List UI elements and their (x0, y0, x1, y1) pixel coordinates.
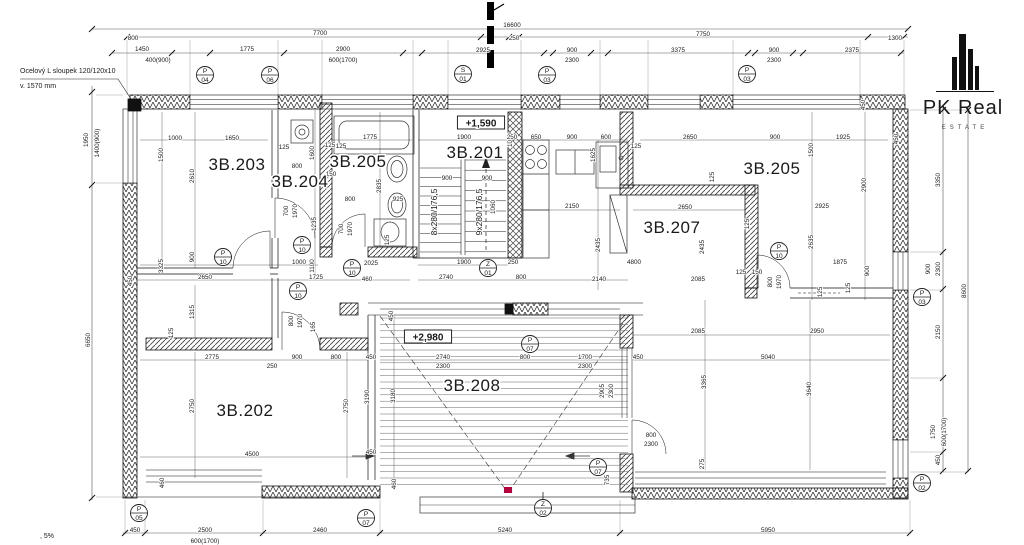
dimension-label: 1925 (836, 134, 851, 141)
dimension-label: 2905 (599, 384, 606, 399)
svg-text:10: 10 (298, 247, 306, 254)
steel-column (128, 99, 141, 111)
svg-text:02: 02 (918, 485, 926, 492)
dimension-label: 1600 (309, 146, 316, 161)
dimension-label: 450 (127, 275, 134, 286)
dimension-label: 2300 (436, 363, 451, 370)
svg-text:Z: Z (541, 501, 545, 508)
dimension-label: 2300 (578, 363, 593, 370)
svg-text:06: 06 (266, 77, 274, 84)
dimension-label: 1650 (225, 135, 240, 142)
dimension-label: 2650 (678, 204, 693, 211)
dimension-label: 2635 (808, 235, 815, 250)
dimension-label: 125 (168, 327, 175, 338)
dimension-label: 1000 (292, 259, 307, 266)
room-label-3b204: 3B.204 (272, 172, 329, 191)
dimension-label: 1000 (168, 135, 183, 142)
dimension-label: 3375 (671, 47, 686, 54)
svg-text:P: P (350, 261, 354, 268)
dimension-label: 800 (288, 315, 295, 326)
dimension-label: 3190 (364, 390, 371, 405)
dimension-label: 800 (767, 276, 774, 287)
dimension-label: 3325 (158, 259, 165, 274)
dimension-label: 4800 (627, 259, 642, 266)
dimension-label: 2150 (935, 325, 942, 340)
svg-text:07: 07 (362, 520, 370, 527)
room-label-3b201: 3B.201 (447, 143, 504, 162)
dimension-label: 8600 (961, 284, 968, 299)
dimension-label: 2750 (343, 399, 350, 414)
svg-text:P: P (137, 506, 141, 513)
dimension-label: 735 (604, 474, 611, 485)
svg-text:03: 03 (543, 77, 551, 84)
dimension-label: 600(1700) (329, 57, 358, 64)
dimension-label: 6650 (85, 333, 92, 348)
svg-text:P: P (745, 67, 749, 74)
reference-marker-z02: Z02 (535, 500, 552, 518)
dimension-label: 250 (508, 259, 519, 266)
svg-text:10: 10 (219, 259, 227, 266)
dimension-label: 460 (159, 477, 166, 488)
dimension-label: 1875 (833, 259, 848, 266)
dimension-label: 250 (267, 363, 278, 370)
dimension-label: 800 (646, 432, 657, 439)
reference-marker-p05: P05 (131, 505, 148, 523)
dimension-label: 1315 (189, 305, 196, 320)
dimension-label: 1775 (240, 46, 255, 53)
svg-text:P: P (777, 244, 781, 251)
dimension-label: 2300 (767, 57, 782, 64)
reference-marker-p03: P03 (539, 67, 556, 85)
level-value: +1,590 (466, 119, 497, 130)
room-label-3b203: 3B.203 (209, 155, 266, 174)
dimension-label: 2775 (205, 354, 220, 361)
dimension-label: 125 (325, 142, 336, 149)
floorplan-canvas: Ocelový L sloupek 120/120x10 v. 1570 mm … (0, 0, 1024, 545)
dimension-label: 600 (601, 134, 612, 141)
dimension-label: 900 (292, 354, 303, 361)
svg-text:P: P (221, 250, 225, 257)
reference-marker-p03: P03 (914, 289, 931, 307)
reference-marker-p07: P07 (590, 459, 607, 477)
dimension-label: 800 (520, 354, 531, 361)
svg-text:04: 04 (201, 77, 209, 84)
svg-text:07: 07 (526, 346, 534, 353)
dimension-label: 450 (388, 310, 395, 321)
dimension-label: 800 (345, 196, 356, 203)
stair-flight-right-label: 9x280/176,5 (474, 188, 484, 235)
reference-marker-p04: P04 (197, 67, 214, 85)
dimension-label: 900 (864, 265, 871, 276)
dimension-label: 2900 (336, 46, 351, 53)
dimension-label: 2300 (608, 384, 615, 399)
svg-text:03: 03 (743, 76, 751, 83)
dimension-label: 5950 (761, 527, 776, 534)
room-label-3b205: 3B.205 (330, 152, 387, 171)
dimension-label: 1300 (888, 35, 903, 42)
room-label-3b202: 3B.202 (217, 401, 274, 420)
dimension-label: 250 (507, 134, 518, 141)
dimension-label: 165 (310, 321, 317, 332)
svg-text:S: S (461, 67, 466, 74)
stair-flight-left-label: 8x280/176,5 (429, 188, 439, 235)
dimension-label: 2740 (439, 274, 454, 281)
dimension-label: 4500 (245, 451, 260, 458)
dimension-label: 800 (128, 35, 139, 42)
room-label-3b208: 3B.208 (444, 376, 501, 395)
blueprint-page: Ocelový L sloupek 120/120x10 v. 1570 mm … (0, 0, 1024, 545)
dimension-label: 3180 (390, 389, 397, 404)
dimension-label: 2750 (189, 399, 196, 414)
dimension-label: 2925 (476, 47, 491, 54)
dimension-label: 2900 (861, 178, 868, 193)
svg-text:10: 10 (775, 253, 783, 260)
dimension-label: 1970 (776, 275, 783, 290)
dimension-label: 450 (633, 354, 644, 361)
dimension-label: 1500 (808, 143, 815, 158)
reference-marker-p06: P06 (262, 67, 279, 85)
dimension-label: 450 (366, 449, 377, 456)
svg-text:P: P (528, 337, 532, 344)
dimension-label: 900 (769, 47, 780, 54)
dimension-label: 1970 (347, 222, 354, 237)
dimension-label: 2375 (845, 47, 860, 54)
dimension-label: 650 (531, 134, 542, 141)
dimension-label: 2650 (683, 134, 698, 141)
svg-text:P: P (203, 68, 207, 75)
reference-marker-p02: P02 (914, 475, 931, 493)
dimension-label: 2460 (313, 527, 328, 534)
dimension-label: 125 (336, 143, 347, 150)
svg-text:P: P (920, 290, 924, 297)
reference-marker-p10: P10 (290, 283, 307, 301)
dimension-label: 900 (925, 263, 932, 274)
dimension-label: 2435 (699, 240, 706, 255)
reference-marker-p10: P10 (771, 243, 788, 261)
dimension-label: 1900 (457, 259, 472, 266)
svg-text:10: 10 (294, 293, 302, 300)
logo-subtitle: ESTATE (942, 125, 988, 131)
svg-text:10: 10 (348, 270, 356, 277)
dimension-label: 125 (279, 144, 290, 151)
dimension-label: 900 (567, 47, 578, 54)
dimension-label: 450 (130, 527, 141, 534)
dimension-label: 450 (366, 354, 377, 361)
dimension-label: 1400(900) (94, 129, 101, 158)
dimension-label: 125 (817, 286, 824, 297)
svg-text:01: 01 (484, 270, 492, 277)
dimension-label: 2950 (810, 328, 825, 335)
reference-marker-p10: P10 (344, 260, 361, 278)
svg-text:Z: Z (486, 261, 490, 268)
dimension-label: 7750 (696, 31, 711, 38)
dimension-label: 125 (631, 143, 642, 150)
dimension-label: 150 (752, 269, 763, 276)
dimension-label: 2150 (565, 203, 580, 210)
reference-marker-z01: Z01 (480, 260, 497, 278)
dimension-label: 900 (442, 175, 453, 182)
reference-marker-p07: P07 (522, 336, 539, 354)
dimension-label: 275 (699, 458, 706, 469)
dimension-label: 1970 (297, 314, 304, 329)
svg-text:03: 03 (918, 299, 926, 306)
room-label-3b207: 3B.207 (644, 218, 701, 237)
reference-marker-p10: P10 (215, 249, 232, 267)
reference-marker-p03: P03 (739, 66, 756, 84)
svg-text:P: P (364, 511, 368, 518)
svg-text:P: P (545, 68, 549, 75)
dimension-label: 700 (283, 205, 290, 216)
dimension-label: 2925 (815, 203, 830, 210)
dimension-label: 1775 (363, 134, 378, 141)
dimension-label: 450 (860, 99, 867, 110)
dimension-label: 3640 (806, 382, 813, 397)
dimension-label: 800 (331, 354, 342, 361)
dimension-label: 900 (189, 251, 196, 262)
dimension-label: 125 (384, 234, 391, 245)
slope-note: , 5% (40, 533, 54, 540)
dimension-label: 1625 (590, 148, 597, 163)
svg-text:02: 02 (539, 510, 547, 517)
dimension-label: 400(900) (145, 57, 170, 64)
dimension-label: 2300 (935, 262, 942, 277)
dimension-label: 2740 (436, 354, 451, 361)
drain-point (504, 487, 512, 493)
dimension-label: 3350 (935, 173, 942, 188)
dimension-label: 125 (709, 171, 716, 182)
dimension-label: 925 (393, 196, 404, 203)
svg-text:P: P (296, 284, 300, 291)
svg-text:P: P (300, 238, 304, 245)
steel-column-note-line2: v. 1570 mm (20, 83, 56, 90)
dimension-label: 900 (567, 134, 578, 141)
dimension-label: 2300 (565, 57, 580, 64)
dimension-label: 5040 (761, 354, 776, 361)
dimension-label: 1235 (311, 217, 318, 232)
dimension-label: 1750 (930, 425, 937, 440)
dimension-label: 700 (338, 223, 345, 234)
dimension-label: 1970 (292, 204, 299, 219)
dimension-label: 2085 (691, 276, 706, 283)
reference-marker-p07: P07 (358, 510, 375, 528)
logo-name: PK Real (923, 97, 1003, 119)
dimension-label: 3365 (701, 375, 708, 390)
dimension-label: 1060 (490, 200, 497, 215)
dimension-label: 1725 (309, 274, 324, 281)
reference-marker-s01: S01 (455, 66, 472, 84)
dimension-label: 16600 (503, 22, 521, 29)
reference-marker-p10: P10 (294, 237, 311, 255)
dimension-label: 600(1700) (941, 418, 948, 447)
dimension-label: 1100 (309, 259, 316, 273)
dimension-label: 2650 (198, 274, 213, 281)
dimension-label: 900 (770, 134, 781, 141)
dimension-label: 2610 (189, 169, 196, 184)
dimension-label: 2085 (691, 328, 706, 335)
dimension-label: 600(1700) (191, 538, 220, 545)
dimension-label: 800 (516, 274, 527, 281)
svg-text:P: P (268, 68, 272, 75)
svg-text:P: P (596, 460, 600, 467)
dimension-label: 5240 (498, 527, 513, 534)
svg-text:P: P (920, 476, 924, 483)
dimension-label: 250 (509, 35, 520, 42)
dimension-label: 2835 (376, 179, 383, 194)
svg-text:05: 05 (135, 515, 143, 522)
dimension-label: 450 (893, 133, 900, 144)
dimension-label: 800 (292, 163, 303, 170)
dimension-label: 2140 (592, 276, 607, 283)
steel-column-note-line1: Ocelový L sloupek 120/120x10 (20, 68, 116, 75)
svg-text:07: 07 (594, 469, 602, 476)
dimension-label: 1700 (578, 354, 593, 361)
dimension-label: 7700 (313, 30, 328, 37)
dimension-label: 2435 (595, 238, 602, 253)
room-label-3b205: 3B.205 (744, 159, 801, 178)
dimension-label: 1950 (83, 133, 90, 148)
dimension-label: 450 (935, 454, 942, 465)
dimension-label: 125 (744, 218, 751, 229)
level-value: +2,980 (413, 333, 444, 344)
dimension-label: 900 (482, 175, 493, 182)
dimension-label: 125 (845, 282, 852, 293)
dimension-label: 2300 (644, 441, 659, 448)
dimension-label: 1500 (158, 148, 165, 163)
dimension-label: 125 (736, 269, 747, 276)
dimension-label: 1450 (135, 46, 150, 53)
dimension-label: 460 (391, 478, 398, 489)
svg-text:01: 01 (459, 76, 467, 83)
dimension-label: 460 (362, 276, 373, 283)
dimension-label: 2025 (364, 260, 379, 267)
dimension-label: 1900 (457, 134, 472, 141)
dimension-label: 2500 (198, 527, 213, 534)
